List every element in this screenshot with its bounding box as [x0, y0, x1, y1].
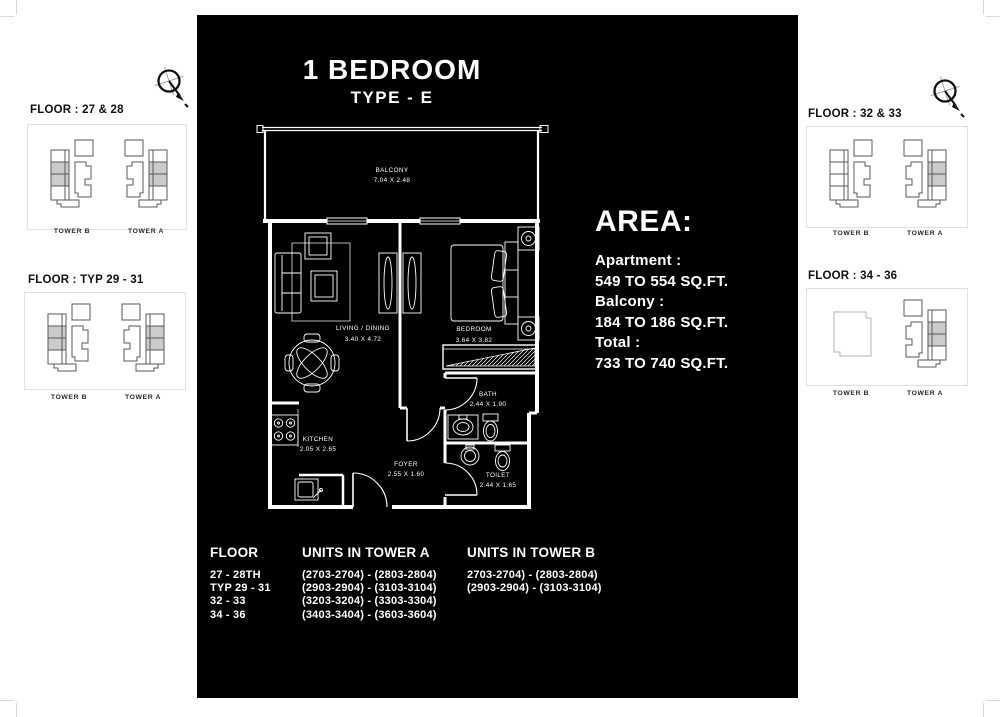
keyplan-floor-label: FLOOR : 32 & 33: [808, 108, 902, 120]
tower-b-column-header: UNITS IN TOWER B: [467, 545, 647, 560]
svg-text:2.05 X 2.65: 2.05 X 2.65: [300, 446, 337, 453]
apartment-area-label: Apartment :: [595, 251, 795, 272]
brochure-panel: 1 BEDROOM TYPE - E: [197, 15, 798, 698]
dining-table: [285, 334, 339, 392]
units-table: FLOOR 27 - 28TH TYP 29 - 31 32 - 33 34 -…: [210, 545, 647, 622]
toilet-fixtures: [461, 445, 510, 471]
tower-a-label: TOWER A: [116, 228, 176, 235]
bedroom-closet: [443, 345, 537, 369]
brochure-page: { "header": { "title": "1 BEDROOM", "sub…: [0, 0, 1000, 717]
kitchen-fixtures: [271, 409, 323, 500]
tower-b-label: TOWER B: [42, 228, 102, 235]
cropmark-bottom-left-v: [16, 703, 17, 717]
cropmark-bottom-right-h: [986, 700, 1000, 701]
apartment-area-value: 549 TO 554 SQ.FT.: [595, 272, 795, 293]
cropmark-bottom-left-h: [0, 700, 14, 701]
svg-text:3.64 X 3.82: 3.64 X 3.82: [456, 337, 493, 344]
tower-b-label: TOWER B: [821, 230, 881, 237]
svg-text:LIVING / DINING: LIVING / DINING: [336, 325, 390, 332]
svg-text:FOYER: FOYER: [394, 461, 418, 468]
svg-text:2.55 X 1.60: 2.55 X 1.60: [388, 471, 425, 478]
bath-fixtures: [448, 414, 498, 441]
tower-b-label: TOWER B: [39, 394, 99, 401]
svg-text:7.04 X 2.48: 7.04 X 2.48: [374, 177, 411, 184]
svg-text:2.44 X 1.90: 2.44 X 1.90: [470, 401, 507, 408]
total-area-value: 733 TO 740 SQ.FT.: [595, 354, 795, 375]
tower-b-units-row: (2903-2904) - (3103-3104): [467, 582, 647, 595]
keyplan-floor-label: FLOOR : TYP 29 - 31: [28, 274, 143, 286]
floor-row: 32 - 33: [210, 595, 302, 608]
keyplan-floor-34-36: [812, 292, 962, 382]
living-furniture: [275, 233, 350, 321]
tower-b-label: TOWER B: [821, 390, 881, 397]
cropmark-top-left-v: [16, 0, 17, 14]
floor-column-header: FLOOR: [210, 545, 302, 560]
room-label-foyer: FOYER 2.55 X 1.60: [388, 461, 425, 478]
compass-icon: [926, 74, 970, 126]
bed: [451, 242, 518, 324]
balcony-area-label: Balcony :: [595, 292, 795, 313]
cropmark-top-left-h: [0, 16, 14, 17]
keyplan-floor-27-28: [33, 132, 183, 222]
tower-a-units-row: (2903-2904) - (3103-3104): [302, 582, 467, 595]
room-label-bedroom: BEDROOM 3.64 X 3.82: [456, 326, 493, 344]
tower-a-label: TOWER A: [895, 230, 955, 237]
svg-text:BALCONY: BALCONY: [376, 167, 409, 174]
tower-a-units-row: (2703-2704) - (2803-2804): [302, 569, 467, 582]
svg-text:BATH: BATH: [479, 391, 497, 398]
room-label-toilet: TOILET 2.44 X 1.65: [480, 472, 517, 489]
page-title: 1 BEDROOM: [237, 55, 547, 85]
room-label-balcony: BALCONY 7.04 X 2.48: [374, 167, 411, 184]
svg-text:TOILET: TOILET: [486, 472, 510, 479]
svg-text:3.40 X 4.72: 3.40 X 4.72: [345, 336, 382, 343]
svg-text:BEDROOM: BEDROOM: [456, 326, 491, 333]
tower-a-units-row: (3403-3404) - (3603-3604): [302, 609, 467, 622]
svg-text:KITCHEN: KITCHEN: [303, 436, 333, 443]
floor-row: 27 - 28TH: [210, 569, 302, 582]
tower-b-units-row: 2703-2704) - (2803-2804): [467, 569, 647, 582]
page-subtitle: TYPE - E: [237, 88, 547, 108]
tower-a-units-row: (3203-3204) - (3303-3304): [302, 595, 467, 608]
compass-icon: [150, 64, 194, 116]
keyplan-floor-32-33: [812, 132, 962, 222]
svg-text:2.44 X 1.65: 2.44 X 1.65: [480, 482, 517, 489]
keyplan-floor-29-31: [30, 296, 180, 386]
cropmark-bottom-right-v: [983, 703, 984, 717]
cropmark-top-right-v: [983, 0, 984, 14]
area-heading: AREA:: [595, 205, 795, 239]
tower-a-column-header: UNITS IN TOWER A: [302, 545, 467, 560]
tower-a-label: TOWER A: [895, 390, 955, 397]
keyplan-floor-label: FLOOR : 27 & 28: [30, 104, 124, 116]
balcony-area-value: 184 TO 186 SQ.FT.: [595, 313, 795, 334]
floor-row: 34 - 36: [210, 609, 302, 622]
area-block: AREA: Apartment : 549 TO 554 SQ.FT. Balc…: [595, 205, 795, 374]
floor-row: TYP 29 - 31: [210, 582, 302, 595]
floor-plan: BALCONY 7.04 X 2.48 LIVING / DINING 3.40…: [255, 115, 555, 515]
room-label-kitchen: KITCHEN 2.05 X 2.65: [300, 436, 337, 453]
keyplan-floor-label: FLOOR : 34 - 36: [808, 270, 897, 282]
room-label-bath: BATH 2.44 X 1.90: [470, 391, 507, 408]
cropmark-top-right-h: [986, 16, 1000, 17]
total-area-label: Total :: [595, 333, 795, 354]
tower-a-label: TOWER A: [113, 394, 173, 401]
room-label-living-dining: LIVING / DINING 3.40 X 4.72: [336, 325, 390, 343]
